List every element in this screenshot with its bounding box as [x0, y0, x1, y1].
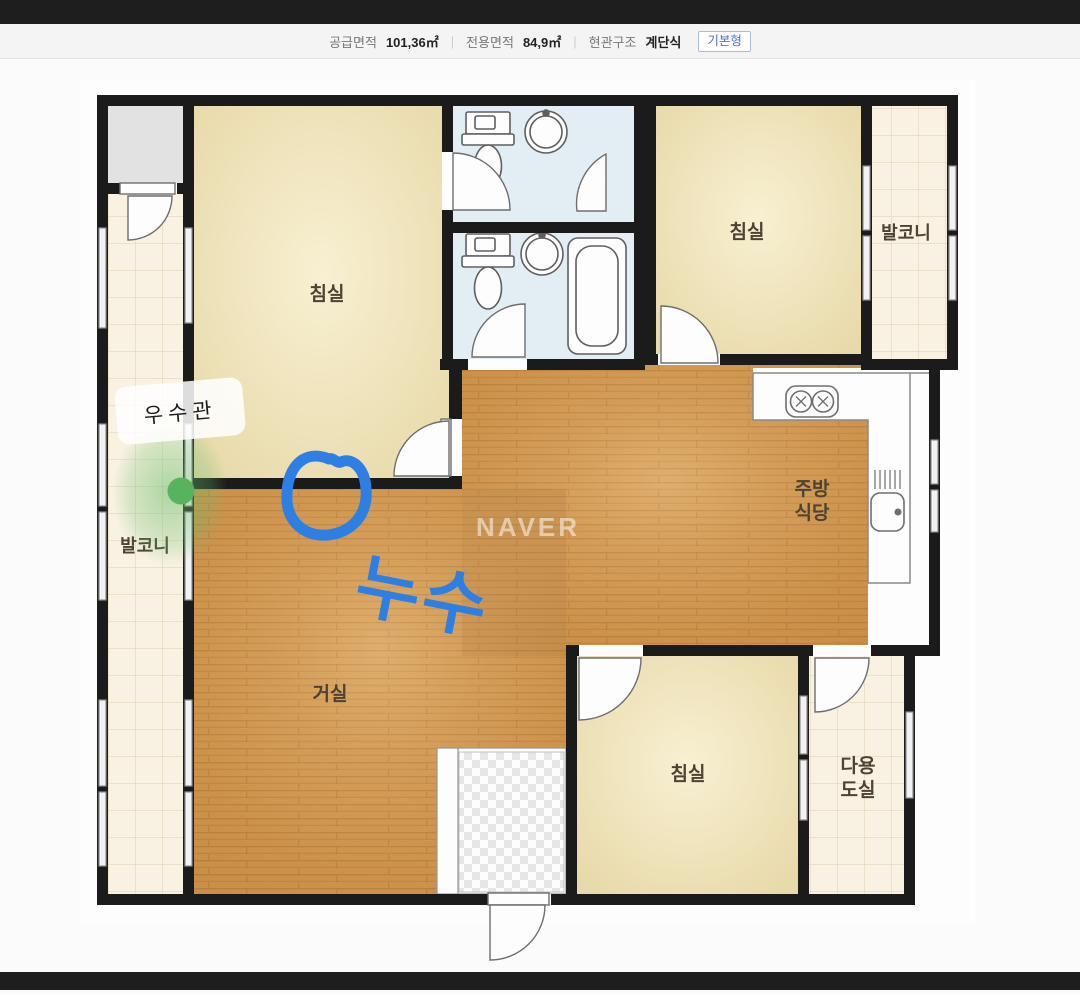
window-marker [99, 700, 106, 786]
window-marker [99, 792, 106, 866]
window-marker [931, 440, 938, 484]
window-marker [863, 236, 870, 300]
naver-watermark: NAVER [476, 512, 580, 542]
plan-type-badge[interactable]: 기본형 [698, 31, 751, 52]
bedroom1-label: 침실 [310, 283, 345, 305]
window-marker [99, 424, 106, 506]
bottom-black-bar [0, 972, 1080, 990]
bathtub-icon [568, 238, 626, 354]
bedroom3-label: 침실 [671, 763, 706, 785]
kitchen-label-line1: 주방 [795, 478, 830, 500]
balcony-right-label: 발코니 [881, 223, 931, 243]
window-marker [800, 696, 807, 754]
window-marker [99, 228, 106, 328]
kitchen-label-line2: 식당 [795, 502, 830, 524]
window-marker [185, 228, 192, 323]
front-door [488, 893, 549, 960]
entrance-type-value: 계단식 [645, 32, 681, 51]
stairwell-area [108, 106, 183, 183]
supply-area-value: 101,36㎡ [386, 32, 439, 51]
supply-area-label: 공급면적 [329, 32, 377, 51]
window-marker [906, 712, 913, 798]
exclusive-area-value: 84,9㎡ [523, 32, 561, 51]
pipe-note-annotation: 우수관 [114, 377, 247, 446]
living-label: 거실 [313, 683, 348, 705]
stove-icon [786, 386, 838, 417]
kitchen-sink-icon [871, 493, 904, 531]
divider: | [451, 34, 454, 49]
entrance-checker [459, 752, 564, 892]
window-marker [949, 236, 956, 300]
top-black-bar [0, 0, 1080, 24]
entrance-area [437, 748, 566, 894]
window-marker [931, 490, 938, 532]
window-marker [800, 760, 807, 820]
window-marker [185, 792, 192, 866]
divider: | [573, 34, 576, 49]
sink-icon [525, 110, 567, 153]
utility-label-line1: 다용 [841, 755, 876, 777]
window-marker [863, 166, 870, 230]
sink-icon [521, 232, 563, 275]
window-marker [949, 166, 956, 230]
entrance-type-label: 현관구조 [589, 32, 637, 51]
header-bar: 공급면적 101,36㎡ | 전용면적 84,9㎡ | 현관구조 계단식 기본형 [0, 24, 1080, 59]
exclusive-area-label: 전용면적 [466, 32, 514, 51]
floor-plan-svg: 침실 침실 침실 발코니 발코니 거실 주방 식당 다용 도실 NAVER 우수… [0, 0, 1080, 990]
bedroom2-label: 침실 [730, 221, 765, 243]
floor-plan: 침실 침실 침실 발코니 발코니 거실 주방 식당 다용 도실 NAVER 우수… [0, 0, 1080, 990]
window-marker [185, 700, 192, 786]
utility-label-line2: 도실 [841, 779, 876, 801]
window-marker [99, 512, 106, 600]
pipe-green-dot [168, 478, 195, 505]
